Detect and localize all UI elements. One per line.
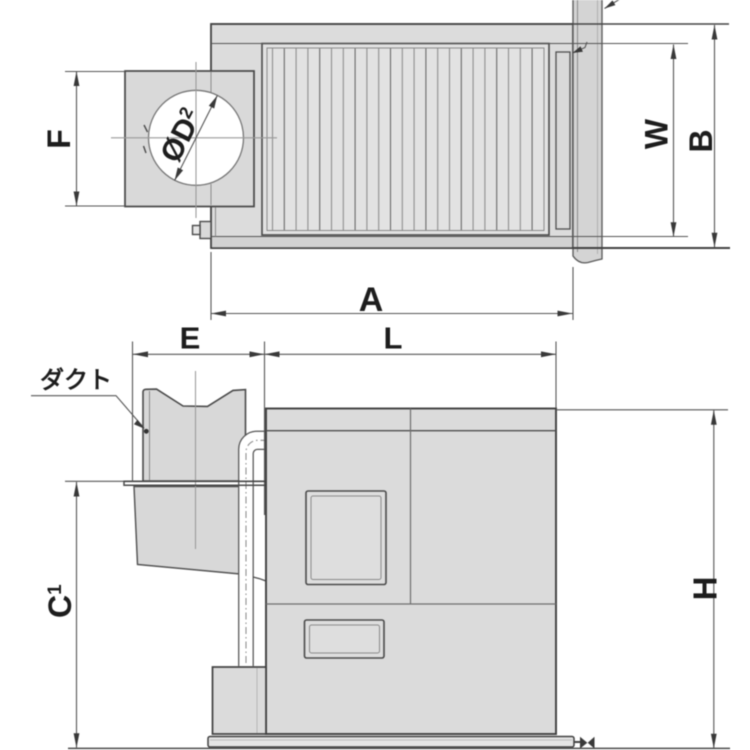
svg-text:L: L — [384, 321, 403, 356]
svg-text:H: H — [687, 577, 724, 601]
svg-text:B: B — [683, 129, 719, 152]
svg-text:ダクト: ダクト — [40, 366, 112, 394]
svg-text:F: F — [41, 129, 77, 149]
svg-text:A: A — [359, 281, 384, 319]
svg-text:E: E — [180, 321, 201, 356]
svg-text:W: W — [639, 118, 675, 149]
